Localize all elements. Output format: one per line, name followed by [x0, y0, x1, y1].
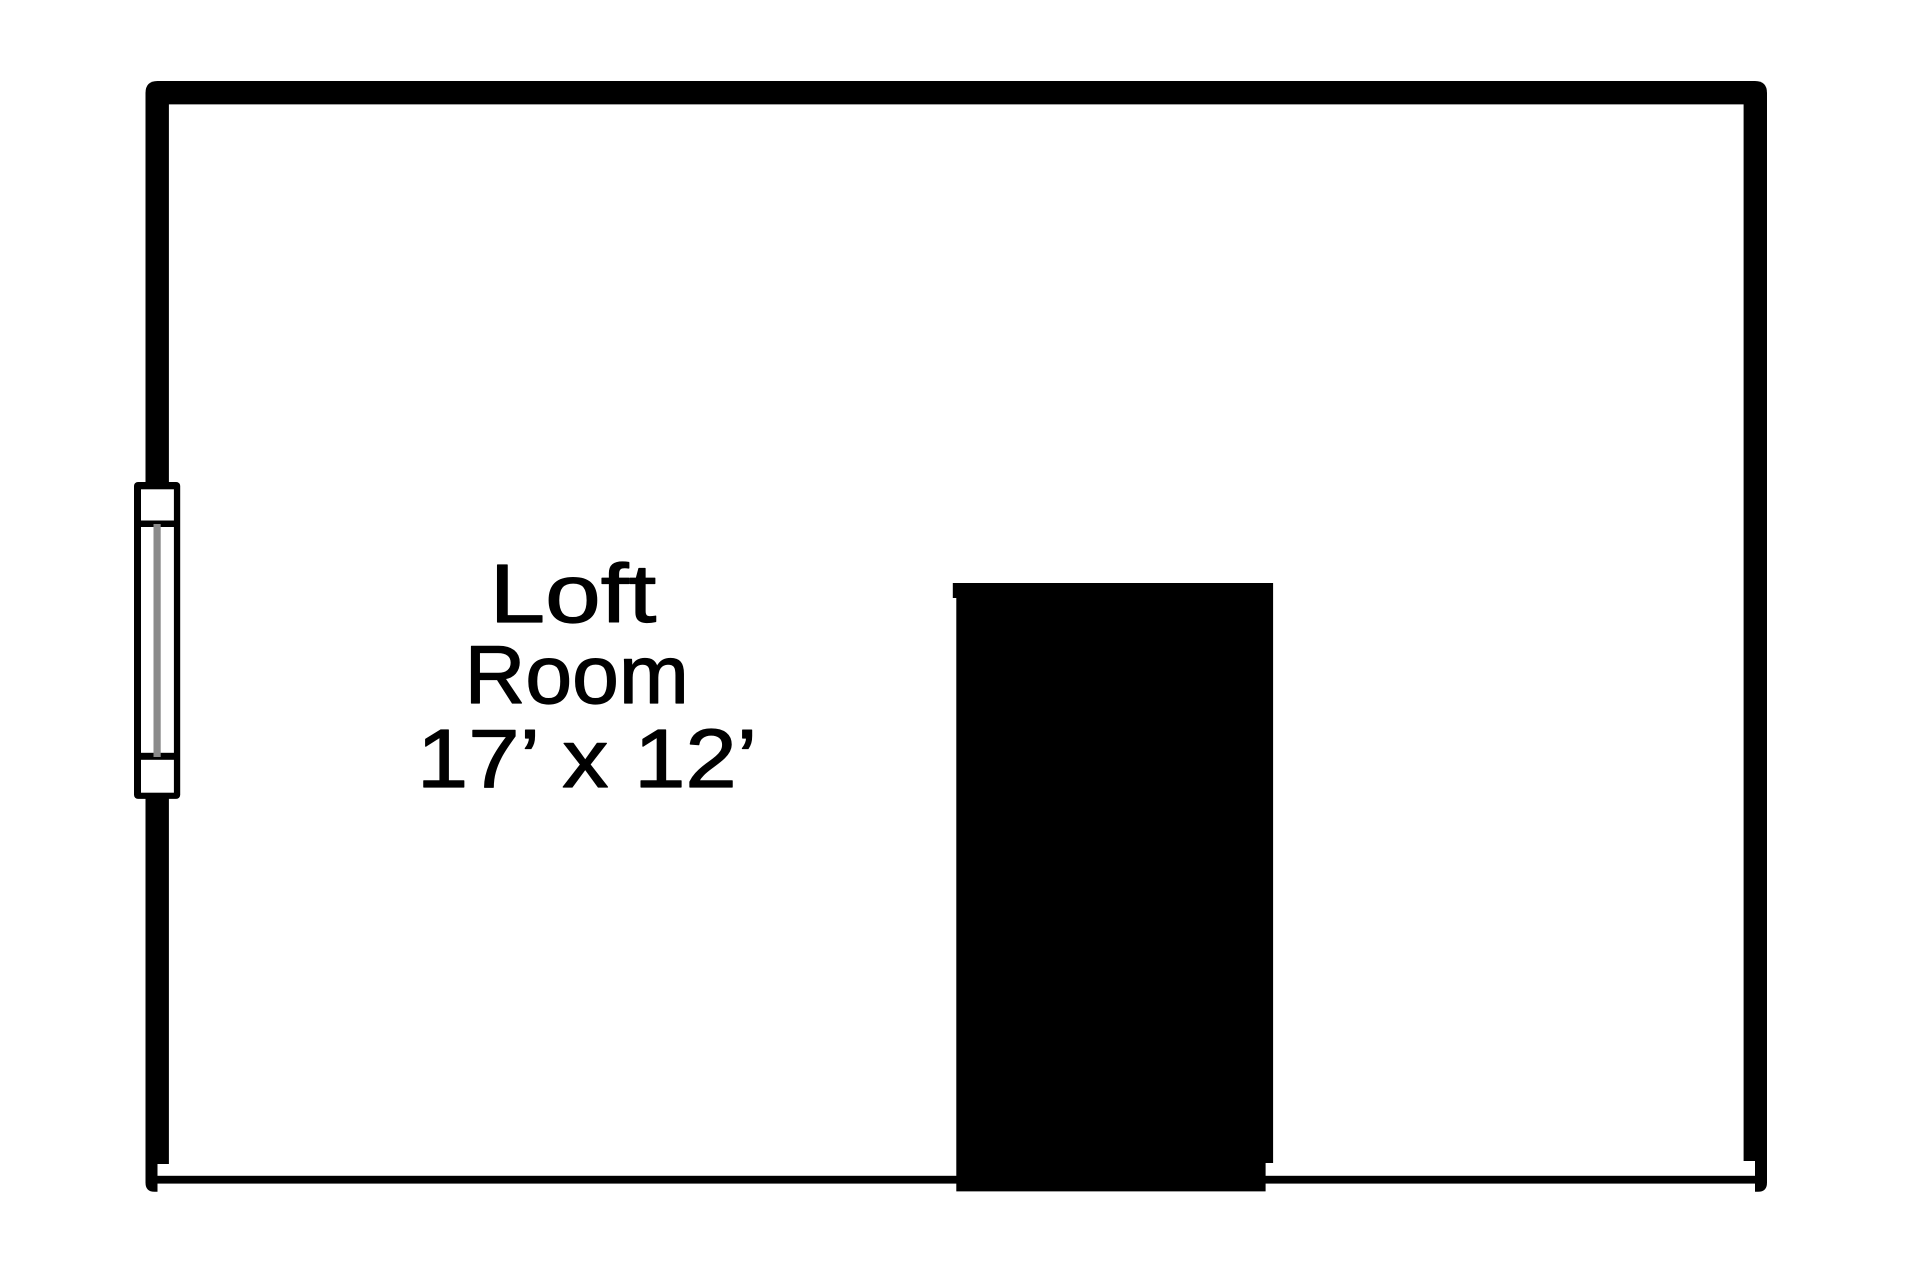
svg-text:17’ x 12’: 17’ x 12’ — [417, 712, 757, 805]
svg-text:Room: Room — [465, 628, 689, 721]
svg-text:Loft: Loft — [490, 547, 657, 640]
